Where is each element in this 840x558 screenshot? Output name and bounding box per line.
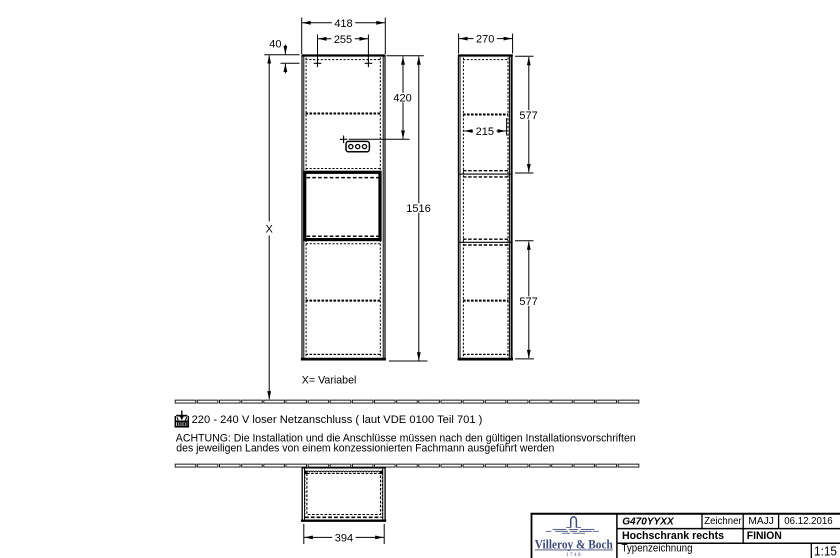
svg-text:577: 577 xyxy=(519,110,537,122)
svg-text:215: 215 xyxy=(476,126,494,138)
svg-text:Villeroy & Boch: Villeroy & Boch xyxy=(535,537,614,552)
svg-text:MAJJ: MAJJ xyxy=(748,515,774,527)
svg-text:40: 40 xyxy=(269,38,281,50)
svg-text:Hochschrank rechts: Hochschrank rechts xyxy=(622,530,724,542)
svg-text:06.12.2016: 06.12.2016 xyxy=(784,515,832,527)
svg-text:394: 394 xyxy=(335,532,353,544)
svg-text:1:15: 1:15 xyxy=(814,544,837,558)
svg-text:420: 420 xyxy=(393,93,411,105)
svg-text:270: 270 xyxy=(476,34,494,46)
svg-text:1748: 1748 xyxy=(566,552,582,558)
svg-text:Zeichner: Zeichner xyxy=(704,516,742,527)
svg-text:220 - 240 V loser Netzanschlus: 220 - 240 V loser Netzanschluss ( laut V… xyxy=(192,414,483,426)
svg-text:G470YYXX: G470YYXX xyxy=(622,515,674,527)
svg-text:255: 255 xyxy=(334,34,352,46)
svg-text:Typenzeichnung: Typenzeichnung xyxy=(622,543,693,555)
svg-text:X= Variabel: X= Variabel xyxy=(302,375,357,387)
svg-text:577: 577 xyxy=(519,296,537,308)
svg-text:des jeweiligen Landes von eine: des jeweiligen Landes von einem konzessi… xyxy=(176,443,554,455)
svg-text:X: X xyxy=(266,223,274,235)
svg-text:1516: 1516 xyxy=(406,203,430,215)
svg-text:418: 418 xyxy=(334,18,352,30)
svg-text:FINION: FINION xyxy=(747,530,782,542)
